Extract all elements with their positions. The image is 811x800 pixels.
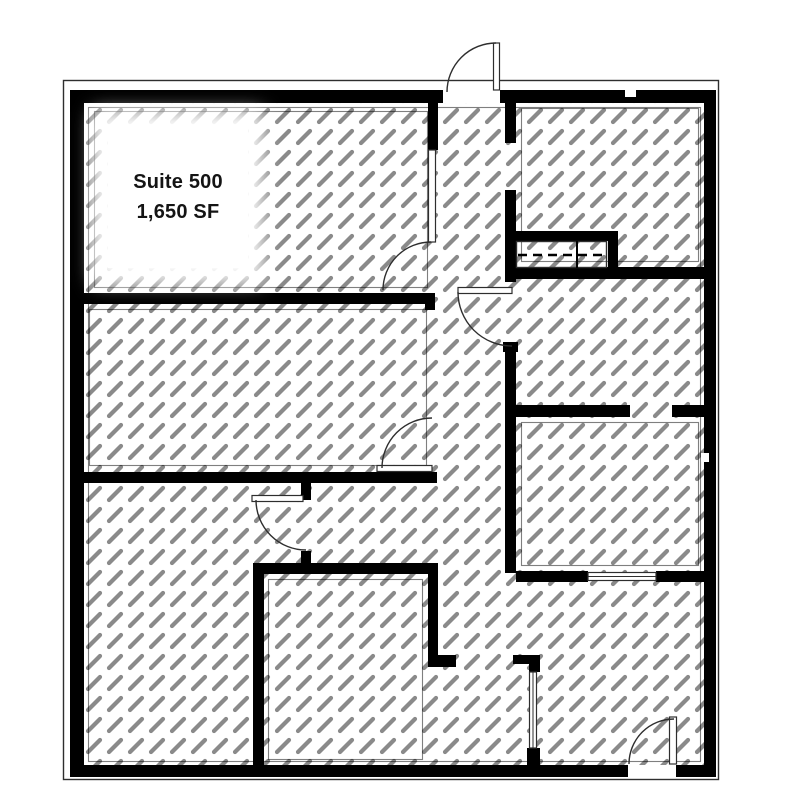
window-vertical [530, 672, 537, 748]
window-horizontal [588, 573, 656, 581]
wall-joint-notch [701, 453, 709, 462]
wall-joint-notch [625, 90, 636, 97]
floor-plan [0, 0, 811, 800]
suite-area-label: 1,650 SF [137, 201, 220, 224]
suite-name-label: Suite 500 [133, 171, 223, 194]
suite-label-box: Suite 500 1,650 SF [108, 126, 248, 268]
floor-plan-canvas: Suite 500 1,650 SF [0, 0, 811, 800]
door-top-entry [447, 43, 500, 92]
